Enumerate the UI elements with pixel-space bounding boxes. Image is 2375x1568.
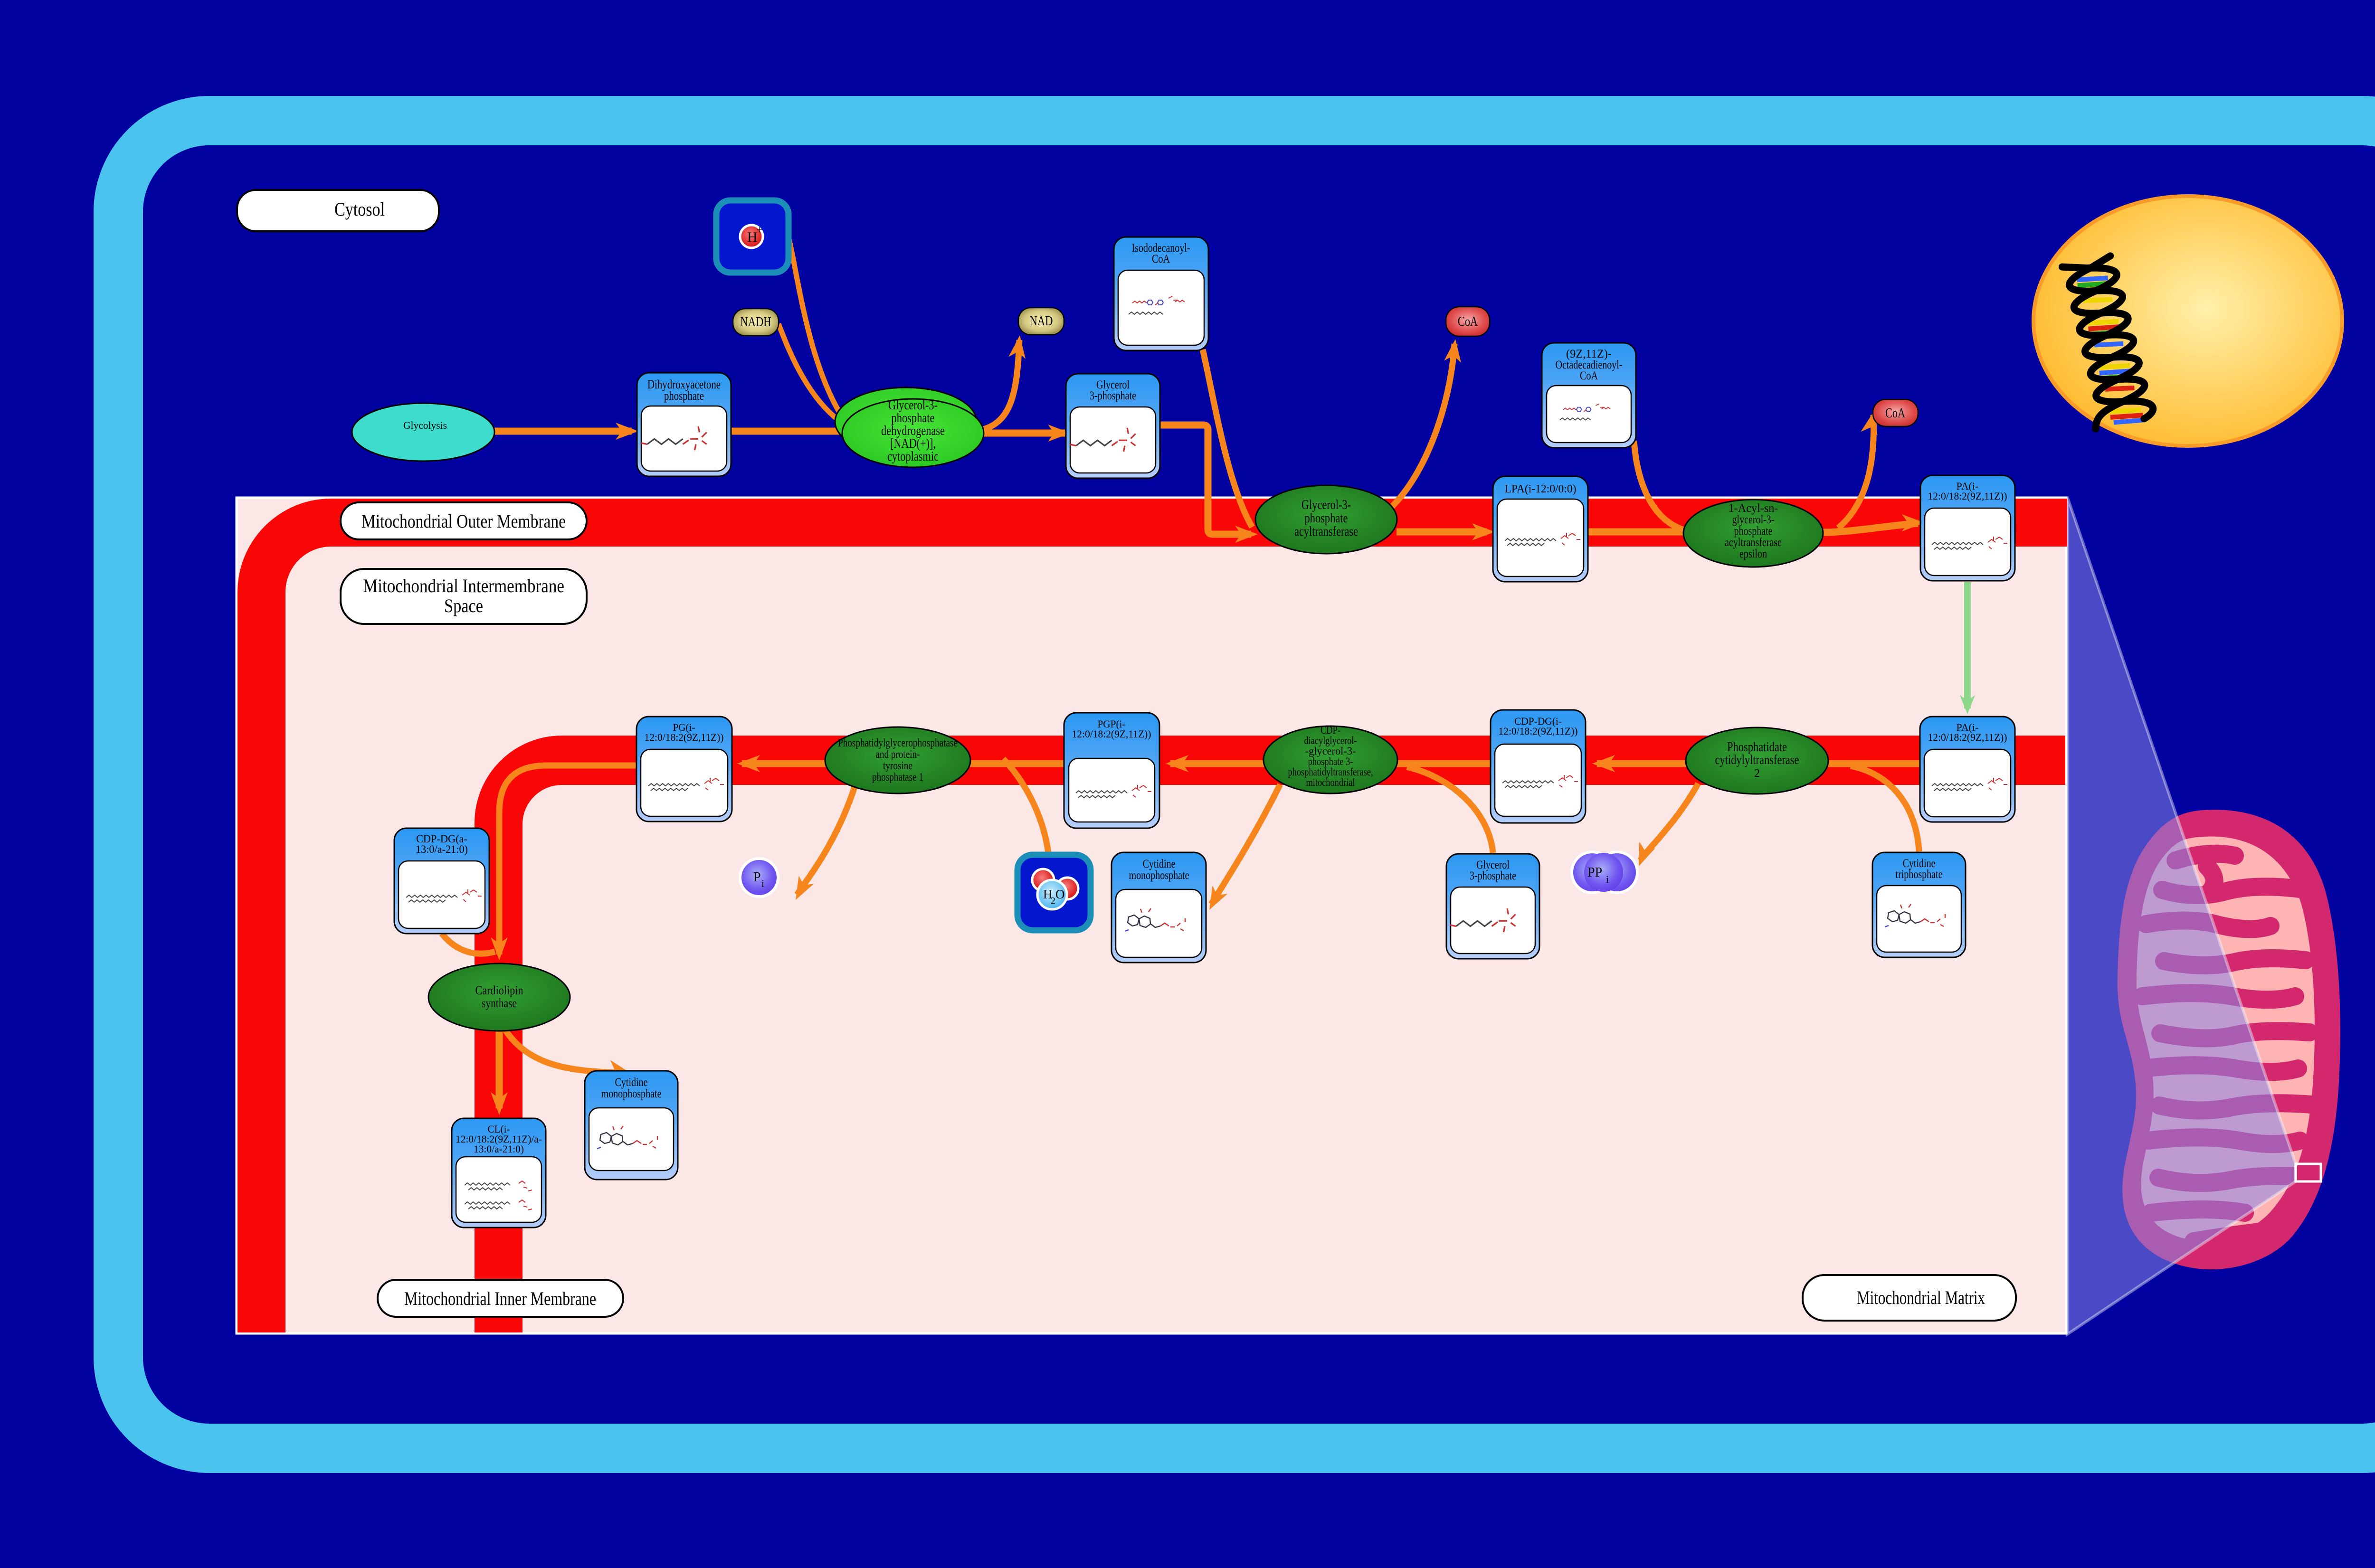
svg-text:Cytosol: Cytosol: [334, 198, 385, 220]
svg-text:monophosphate: monophosphate: [1129, 869, 1189, 882]
svg-text:Cytidine: Cytidine: [1143, 858, 1176, 870]
svg-text:13:0/a-21:0): 13:0/a-21:0): [474, 1143, 524, 1155]
svg-text:PP: PP: [1587, 865, 1602, 880]
svg-text:i: i: [761, 878, 764, 889]
svg-text:acyltransferase: acyltransferase: [1294, 524, 1358, 539]
svg-text:2: 2: [1051, 896, 1055, 906]
svg-text:Glycolysis: Glycolysis: [403, 419, 447, 431]
svg-text:phosphate: phosphate: [1734, 525, 1773, 538]
svg-text:NAD: NAD: [1030, 314, 1053, 329]
svg-text:3-phosphate: 3-phosphate: [1090, 389, 1136, 402]
svg-text:12:0/18:2(9Z,11Z)): 12:0/18:2(9Z,11Z)): [1499, 725, 1578, 737]
svg-text:mitochondrial: mitochondrial: [1306, 776, 1355, 788]
svg-text:glycerol-3-: glycerol-3-: [1732, 513, 1775, 526]
svg-text:NADH: NADH: [741, 315, 771, 330]
svg-text:and protein-: and protein-: [876, 748, 920, 761]
svg-text:2: 2: [1754, 767, 1760, 780]
svg-text:Mitochondrial Intermembrane: Mitochondrial Intermembrane: [363, 575, 564, 596]
svg-text:triphosphate: triphosphate: [1896, 868, 1943, 881]
svg-text:12:0/18:2(9Z,11Z)): 12:0/18:2(9Z,11Z)): [1928, 490, 2007, 502]
svg-text:12:0/18:2(9Z,11Z)): 12:0/18:2(9Z,11Z)): [1072, 728, 1151, 740]
svg-text:synthase: synthase: [482, 996, 517, 1010]
svg-text:12:0/18:2(9Z,11Z)): 12:0/18:2(9Z,11Z)): [645, 731, 724, 743]
svg-text:cytidylyltransferase: cytidylyltransferase: [1715, 753, 1799, 767]
svg-text:Mitochondrial Outer Membrane: Mitochondrial Outer Membrane: [361, 510, 566, 532]
svg-text:CoA: CoA: [1152, 253, 1170, 265]
svg-text:CoA: CoA: [1458, 314, 1478, 329]
svg-text:Phosphatidylglycerophosphatase: Phosphatidylglycerophosphatase: [838, 737, 958, 749]
svg-text:i: i: [1606, 873, 1609, 885]
svg-text:Glycerol-3-: Glycerol-3-: [1301, 498, 1351, 512]
svg-text:phosphate: phosphate: [664, 389, 704, 403]
svg-text:Space: Space: [444, 595, 483, 616]
svg-text:O: O: [1055, 887, 1065, 901]
svg-text:tyrosine: tyrosine: [883, 760, 912, 772]
svg-text:Cytidine: Cytidine: [615, 1076, 648, 1089]
svg-text:12:0/18:2(9Z,11Z)): 12:0/18:2(9Z,11Z)): [1928, 731, 2007, 743]
svg-text:epsilon: epsilon: [1739, 548, 1767, 560]
svg-text:LPA(i-12:0/0:0): LPA(i-12:0/0:0): [1505, 483, 1577, 495]
svg-text:13:0/a-21:0): 13:0/a-21:0): [416, 843, 468, 855]
svg-text:CoA: CoA: [1580, 369, 1598, 382]
svg-text:Cardiolipin: Cardiolipin: [475, 983, 523, 997]
svg-text:Mitochondrial Inner Membrane: Mitochondrial Inner Membrane: [404, 1288, 596, 1309]
svg-text:monophosphate: monophosphate: [601, 1087, 662, 1100]
svg-text:phosphate: phosphate: [1305, 511, 1348, 526]
svg-text:3-phosphate: 3-phosphate: [1470, 869, 1516, 882]
svg-text:P: P: [753, 870, 761, 885]
svg-text:cytoplasmic: cytoplasmic: [887, 449, 939, 464]
svg-text:1-Acyl-sn-: 1-Acyl-sn-: [1729, 502, 1778, 515]
svg-text:Mitochondrial Matrix: Mitochondrial Matrix: [1857, 1287, 1985, 1308]
svg-text:phosphatase 1: phosphatase 1: [872, 771, 923, 784]
svg-text:+: +: [756, 224, 763, 236]
svg-text:acyltransferase: acyltransferase: [1725, 536, 1782, 549]
svg-text:CoA: CoA: [1885, 406, 1906, 421]
